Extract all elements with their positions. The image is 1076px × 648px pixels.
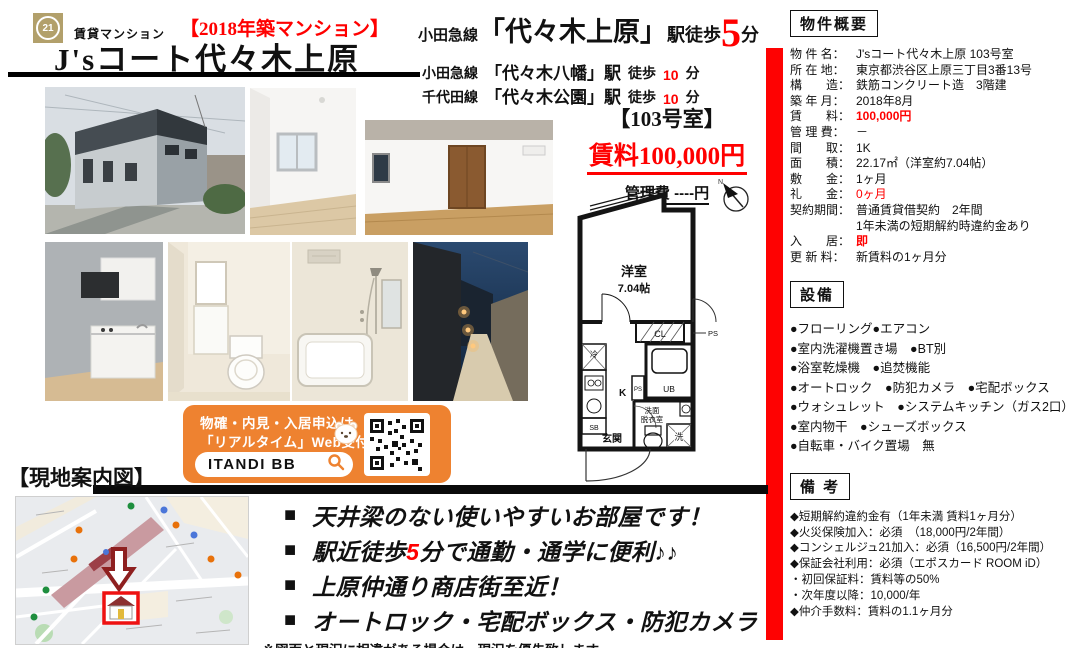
spec-row: 築 年 月：2018年8月 [790,94,1072,110]
rail-line-name: 小田急線 [422,63,478,83]
banner-line-1: 物確・内見・入居申込は [200,412,354,432]
spec-label: 管 理 費： [790,125,856,141]
itandi-search-pill: ITANDI BB [195,452,353,477]
walk-minutes: 10 [663,67,679,83]
spec-row: 管 理 費：－ [790,125,1072,141]
floorplan-washroom-label-1: 洗面 [645,405,660,415]
bullet-square-icon: ■ [284,540,296,560]
spec-value: － [856,125,868,141]
walk-prefix: 徒歩 [628,63,656,83]
walk-unit: 分 [686,63,700,83]
bullet-square-icon: ■ [284,575,296,595]
spec-row: 礼 金：0ヶ月 [790,187,1072,203]
floorplan-shoebox-label: SB [589,425,599,432]
highlight-text: 上原仲通り商店街至近！ [312,574,571,600]
spec-label [790,219,856,235]
search-icon [327,453,345,476]
spec-value: 1ヶ月 [856,172,887,188]
spec-label: 間 取： [790,141,856,157]
spec-label: 賃 料： [790,109,856,125]
spec-row: 1年未満の短期解約時違約金あり [790,219,1072,235]
spec-row: 入 居：即 [790,234,1072,250]
rail-line-name: 千代田線 [422,87,478,107]
remarks-item: ・初回保証料：賃料等の50% [790,573,1072,589]
spec-value: J'sコート代々木上原 103号室 [856,47,1014,63]
equipment-item: ●室内洗濯機置き場 ●BT別 [790,340,1072,360]
walk-minutes: 5 [721,15,741,51]
rail-line-name: 小田急線 [418,24,478,45]
equipment-item: ●浴室乾燥機 ●追焚機能 [790,359,1072,379]
equipment-item: ●フローリング●エアコン [790,320,1072,340]
photo-interior-room [250,88,356,235]
floorplan-bath-label: UB [663,384,675,394]
floorplan-ps-small-label: PS [634,387,642,393]
floorplan-closet-label: CL [654,329,666,339]
remarks-heading: 備 考 [790,473,850,500]
site-map [15,496,249,645]
floorplan-entrance-label: 玄関 [602,432,622,445]
remarks-item: ・次年度以降：10,000/年 [790,589,1072,605]
spec-row: 更 新 料：新賃料の1ヶ月分 [790,250,1072,266]
equipment-item: ●自転車・バイク置場 無 [790,437,1072,457]
spec-value: 1年未満の短期解約時違約金あり [856,219,1031,235]
info-panel: 物件概要 物 件 名：J'sコート代々木上原 103号室 所 在 地：東京都渋谷… [790,10,1072,620]
qr-code [364,413,430,476]
overview-heading: 物件概要 [790,10,878,37]
equipment-item: ●ウォシュレット ●システムキッチン（ガス2口） [790,398,1072,418]
highlight-item: ■ 天井梁のない使いやすいお部屋です！ [262,497,782,532]
highlight-text: 分で通勤・通学に便利♪♪ [419,539,678,565]
walk-unit: 分 [741,21,759,47]
bullet-square-icon: ■ [284,505,296,525]
spec-value: 普通賃貸借契約 2年間 [856,203,983,219]
spec-label: 構 造： [790,78,856,94]
disclaimer-note: ※図面と現況に相違がある場合は、現況を優先致します。 [262,639,782,648]
bear-mascot-icon [333,420,359,449]
remarks-item: ◆火災保険加入：必須 （18,000円/2年間） [790,526,1072,542]
spec-label: 敷 金： [790,172,856,188]
spec-value: 100,000円 [856,109,911,125]
spec-label: 面 積： [790,156,856,172]
photo-bathroom [292,242,408,401]
station-name: 「代々木八幡」駅 [485,59,621,84]
spec-label: 築 年 月： [790,94,856,110]
floorplan-size-label: 7.04帖 [618,281,650,295]
floorplan-laundry-label: 洗 [674,431,683,442]
photo-building-exterior [45,87,245,234]
highlight-item: ■ 上原仲通り商店街至近！ [262,567,782,602]
highlight-text: オートロック・宅配ボックス・防犯カメラ [312,609,757,635]
spec-label: 礼 金： [790,187,856,203]
spec-row: 所 在 地：東京都渋谷区上原三丁目3番13号 [790,63,1072,79]
bullet-square-icon: ■ [284,610,296,630]
remarks-item: ◆短期解約違約金有（1年未満 賃料1ヶ月分） [790,510,1072,526]
spec-row: 契約期間：普通賃貸借契約 2年間 [790,203,1072,219]
site-map-heading: 【現地案内図】 [8,462,155,492]
station-name: 「代々木上原」 [478,10,667,49]
spec-value: 東京都渋谷区上原三丁目3番13号 [856,63,1032,79]
spec-value: 即 [856,234,868,250]
floorplan-fridge-label: 冷 [590,349,598,359]
rent-amount: 賃料100,000円 [587,136,747,175]
highlight-emphasis: 5 [406,539,419,565]
remarks-list: ◆短期解約違約金有（1年未満 賃料1ヶ月分） ◆火災保険加入：必須 （18,00… [790,510,1072,621]
spec-label: 物 件 名： [790,47,856,63]
itandi-web-banner: 物確・内見・入居申込は 「リアルタイム」Web受付 ITANDI BB [183,405,451,483]
floor-plan: 洋室 7.04帖 CL PS 冷 K PS UB 洗面 脱衣室 玄関 洗 SB [572,186,768,491]
spec-value: 1K [856,141,871,157]
highlight-item: ■ 駅近徒歩5分で通勤・通学に便利♪♪ [262,532,782,567]
title-underline [8,72,420,77]
floorplan-room-label: 洋室 [621,264,647,279]
equipment-heading: 設備 [790,281,844,308]
spec-value: 新賃料の1ヶ月分 [856,250,947,266]
floorplan-ps-label: PS [708,329,718,338]
spec-row: 間 取：1K [790,141,1072,157]
spec-row: 面 積：22.17㎡（洋室約7.04帖） [790,156,1072,172]
spec-value: 0ヶ月 [856,187,887,203]
highlights-list: ■ 天井梁のない使いやすいお部屋です！ ■ 駅近徒歩5分で通勤・通学に便利♪♪ … [262,497,782,648]
remarks-item: ◆仲介手数料：賃料の1.1ヶ月分 [790,605,1072,621]
spec-label: 契約期間： [790,203,856,219]
remarks-item: ◆保証会社利用：必須（エポスカード ROOM iD） [790,557,1072,573]
black-divider [93,485,768,494]
remarks-item: ◆コンシェルジュ21加入：必須（16,500円/2年間） [790,541,1072,557]
floorplan-washroom-label-2: 脱衣室 [641,414,664,424]
equipment-item: ●室内物干 ●シューズボックス [790,418,1072,438]
photo-washroom-toilet [168,242,290,401]
equipment-list: ●フローリング●エアコン ●室内洗濯機置き場 ●BT別 ●浴室乾燥機 ●追焚機能… [790,320,1072,457]
equipment-item: ●オートロック ●防犯カメラ ●宅配ボックス [790,379,1072,399]
spec-value: 22.17㎡（洋室約7.04帖） [856,156,993,172]
spec-row: 敷 金：1ヶ月 [790,172,1072,188]
access-sub-line-1: 小田急線 「代々木八幡」駅 徒歩 10 分 [422,59,700,84]
photo-night-alley [413,242,528,401]
overview-table: 物 件 名：J'sコート代々木上原 103号室 所 在 地：東京都渋谷区上原三丁… [790,47,1072,265]
room-number: 【103号室】 [560,103,774,133]
photo-kitchen [45,242,163,401]
highlight-text: 駅近徒歩 [312,539,406,565]
spec-row: 物 件 名：J'sコート代々木上原 103号室 [790,47,1072,63]
highlight-text: 天井梁のない使いやすいお部屋です！ [312,504,712,530]
floorplan-kitchen-label: K [619,388,627,399]
walk-prefix: 駅徒歩 [667,21,721,47]
itandi-brand: ITANDI BB [208,456,327,473]
spec-row: 賃 料：100,000円 [790,109,1072,125]
access-main-line: 小田急線 「代々木上原」 駅徒歩 5 分 [418,10,759,51]
spec-label: 所 在 地： [790,63,856,79]
spec-label: 入 居： [790,234,856,250]
photo-room-with-door [365,120,553,235]
highlight-item: ■ オートロック・宅配ボックス・防犯カメラ [262,602,782,637]
spec-value: 鉄筋コンクリート造 3階建 [856,78,1007,94]
property-flyer: 21 賃貸マンション 【2018年築マンション】 J'sコート代々木上原 小田急… [0,0,1076,648]
spec-row: 構 造：鉄筋コンクリート造 3階建 [790,78,1072,94]
north-compass-icon: N [712,174,756,221]
spec-label: 更 新 料： [790,250,856,266]
compass-north-label: N [718,179,723,186]
spec-value: 2018年8月 [856,94,913,110]
